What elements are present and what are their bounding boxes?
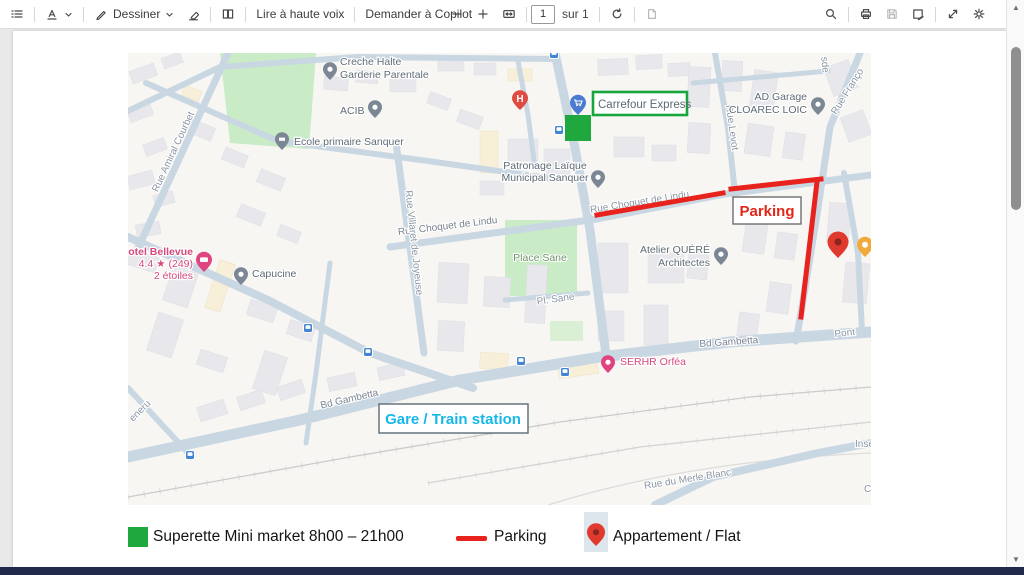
divider — [34, 7, 35, 22]
svg-text:AD Garage: AD Garage — [754, 91, 807, 103]
svg-text:Place Sane: Place Sane — [513, 252, 567, 264]
svg-text:4.4 ★ (249): 4.4 ★ (249) — [139, 258, 193, 270]
document-icon — [645, 7, 659, 21]
chevron-down-icon — [64, 10, 73, 19]
pdf-toolbar: Dessiner Lire à haute voix Demander à Co… — [0, 0, 1006, 29]
fit-to-width-button[interactable] — [496, 2, 522, 26]
scrollbar-thumb[interactable] — [1011, 47, 1021, 210]
map-canvas: Rue Amiral Courbet Rue Choquet de Lindu … — [128, 53, 871, 505]
save-as-icon — [911, 7, 925, 21]
map-image: Rue Amiral Courbet Rue Choquet de Lindu … — [128, 53, 871, 505]
eraser-button[interactable] — [180, 2, 206, 26]
annotation-parking-box: Parking — [733, 197, 801, 224]
divider — [210, 7, 211, 22]
pdf-page: Rue Amiral Courbet Rue Choquet de Lindu … — [13, 31, 1006, 567]
divider — [526, 7, 527, 22]
scroll-up-arrow[interactable]: ▲ — [1007, 3, 1024, 12]
legend-green-square — [128, 527, 148, 547]
legend-parking-label: Parking — [494, 528, 547, 546]
search-icon — [824, 7, 838, 21]
svg-text:Pont: Pont — [834, 327, 856, 340]
page-view-button[interactable] — [215, 2, 241, 26]
svg-text:Capucine: Capucine — [252, 268, 297, 280]
page-tools-button[interactable] — [639, 2, 665, 26]
svg-text:Ecole primaire Sanquer: Ecole primaire Sanquer — [294, 136, 404, 148]
plus-icon — [476, 7, 490, 21]
draw-button[interactable]: Dessiner — [88, 2, 180, 26]
vertical-scrollbar[interactable]: ▲ ▼ — [1006, 0, 1024, 567]
svg-text:H: H — [516, 94, 523, 105]
annotation-green-square — [565, 115, 591, 141]
divider — [599, 7, 600, 22]
draw-label: Dessiner — [113, 7, 160, 21]
print-button[interactable] — [853, 2, 879, 26]
highlight-button[interactable] — [39, 2, 79, 26]
svg-text:SERHR Orféa: SERHR Orféa — [620, 356, 686, 368]
svg-text:Creche Halte: Creche Halte — [340, 56, 401, 68]
print-icon — [859, 7, 873, 21]
divider — [83, 7, 84, 22]
settings-button[interactable] — [966, 2, 992, 26]
divider — [935, 7, 936, 22]
carrefour-label: Carrefour Express — [598, 99, 692, 111]
svg-text:Garderie Parentale: Garderie Parentale — [340, 69, 429, 81]
svg-text:Inse: Inse — [855, 439, 871, 450]
chevron-down-icon — [165, 10, 174, 19]
page-number-input[interactable] — [531, 5, 555, 24]
highlighter-icon — [45, 7, 59, 21]
pen-icon — [94, 7, 108, 21]
scroll-down-arrow[interactable]: ▼ — [1007, 555, 1024, 564]
legend-apartment-pin — [584, 512, 608, 552]
divider — [848, 7, 849, 22]
svg-text:Atelier QUÉRÉ: Atelier QUÉRÉ — [640, 243, 710, 256]
svg-text:Municipal Sanquer: Municipal Sanquer — [502, 172, 589, 184]
save-icon — [885, 7, 899, 21]
page-count-label: sur 1 — [562, 7, 589, 21]
read-aloud-button[interactable]: Lire à haute voix — [250, 2, 350, 26]
eraser-icon — [186, 7, 200, 21]
svg-text:otel Bellevue: otel Bellevue — [128, 246, 193, 258]
divider — [634, 7, 635, 22]
svg-text:C: C — [864, 484, 871, 495]
read-aloud-label: Lire à haute voix — [256, 7, 344, 21]
search-button[interactable] — [818, 2, 844, 26]
fit-width-icon — [502, 7, 516, 21]
rotate-button[interactable] — [604, 2, 630, 26]
save-as-button[interactable] — [905, 2, 931, 26]
divider — [245, 7, 246, 22]
fullscreen-icon — [946, 7, 960, 21]
parking-label: Parking — [739, 203, 794, 220]
svg-text:2 étoiles: 2 étoiles — [154, 270, 193, 282]
gear-icon — [972, 7, 986, 21]
table-of-contents-button[interactable] — [4, 2, 30, 26]
save-button[interactable] — [879, 2, 905, 26]
svg-text:CLOAREC LOIC: CLOAREC LOIC — [729, 104, 808, 116]
annotation-carrefour-box: Carrefour Express — [593, 92, 692, 115]
divider — [354, 7, 355, 22]
svg-text:sde: sde — [818, 56, 830, 73]
svg-text:Patronage Laïque: Patronage Laïque — [503, 160, 587, 172]
svg-text:Architectes: Architectes — [658, 257, 710, 269]
minus-icon — [450, 7, 464, 21]
rotate-icon — [610, 7, 624, 21]
legend-red-line — [456, 536, 487, 541]
legend-superette-label: Superette Mini market 8h00 – 21h00 — [153, 528, 404, 546]
zoom-in-button[interactable] — [470, 2, 496, 26]
pdf-viewer-window: Dessiner Lire à haute voix Demander à Co… — [0, 0, 1024, 575]
legend-apartment-label: Appartement / Flat — [613, 528, 741, 546]
taskbar-edge — [0, 567, 1024, 575]
fullscreen-button[interactable] — [940, 2, 966, 26]
zoom-out-button[interactable] — [444, 2, 470, 26]
gare-label: Gare / Train station — [385, 411, 521, 428]
toc-icon — [10, 7, 24, 21]
svg-text:ACIB: ACIB — [340, 105, 365, 117]
annotation-gare-box: Gare / Train station — [379, 404, 528, 433]
two-page-view-icon — [221, 7, 235, 21]
